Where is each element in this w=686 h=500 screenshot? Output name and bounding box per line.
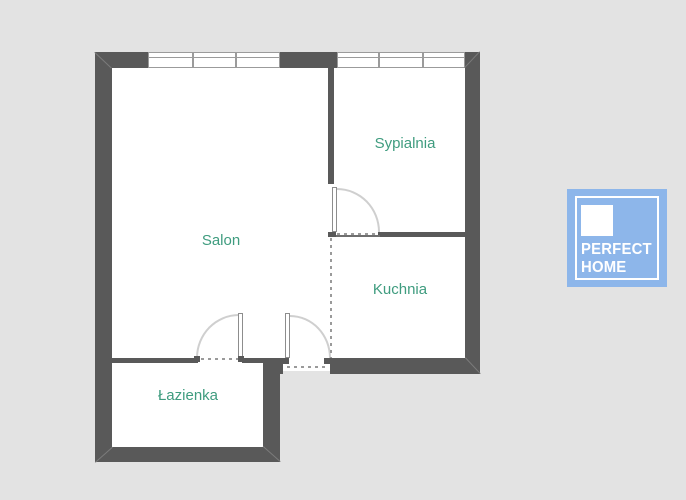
room-label-kuchnia: Kuchnia	[345, 281, 455, 299]
wall-bottom-main	[330, 358, 480, 374]
kitchen-wall-main	[378, 232, 465, 237]
bedroom-doorway-line	[336, 235, 380, 237]
bedroom-partition-wall	[328, 68, 334, 184]
door-jamb	[324, 358, 330, 364]
bedroom-door-leaf	[332, 187, 337, 232]
entrance-recess-fill	[283, 358, 330, 371]
bathroom-door-leaf	[238, 313, 243, 358]
door-jamb	[283, 358, 289, 364]
window-mullion	[422, 53, 424, 67]
room-label-salon: Salon	[166, 232, 276, 250]
wall-right	[465, 52, 480, 374]
room-label-lazienka: Łazienka	[133, 387, 243, 405]
window-sill-line	[149, 57, 279, 58]
bathroom-threshold-dashed-line	[201, 358, 238, 360]
entrance-threshold-dashed-line	[287, 366, 327, 368]
bedroom-window	[337, 52, 465, 68]
logo-square-icon	[581, 205, 613, 236]
logo-text-line1: PERFECT	[581, 241, 652, 259]
bedroom-threshold-dashed-line	[337, 233, 378, 235]
floorplan-canvas: Salon Sypialnia Kuchnia Łazienka PERFECT…	[0, 0, 686, 500]
window-mullion	[235, 53, 237, 67]
perfect-home-logo: PERFECT HOME	[567, 189, 667, 287]
window-mullion	[378, 53, 380, 67]
bathroom-partition-left	[112, 358, 198, 363]
wall-bathroom-bottom	[95, 447, 280, 462]
window-mullion	[192, 53, 194, 67]
wall-left	[95, 52, 112, 462]
kitchen-wall-left-stub	[328, 232, 336, 237]
entrance-door-leaf	[285, 313, 290, 358]
window-sill-line	[338, 57, 464, 58]
salon-window	[148, 52, 280, 68]
door-jamb	[238, 356, 244, 362]
logo-text-line2: HOME	[581, 259, 626, 277]
door-jamb	[194, 356, 200, 362]
bathroom-partition-right	[242, 358, 263, 363]
room-label-sypialnia: Sypialnia	[350, 135, 460, 153]
kitchen-boundary-dashed-line	[330, 238, 332, 358]
